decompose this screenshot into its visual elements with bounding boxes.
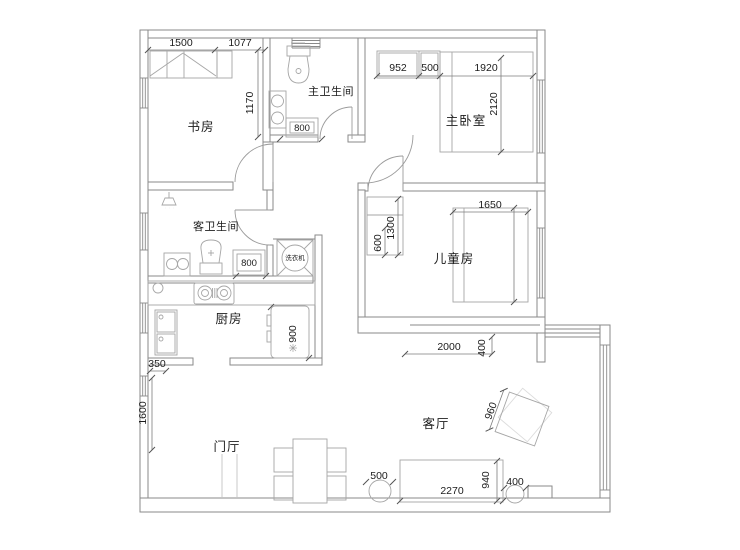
dim-label-400-stool: 400 [506, 476, 524, 488]
room-label-kitchen: 厨房 [215, 311, 242, 326]
wall-children-left [358, 190, 365, 322]
floor-plan-canvas: 书房 主卫生间 主卧室 客卫生间 儿童房 厨房 门厅 客厅 洗衣机 1500 1… [0, 0, 740, 550]
room-label-master-bedroom: 主卧室 [446, 113, 487, 128]
toilet-icon-guest [200, 240, 222, 274]
dim-label-1600: 1600 [137, 401, 149, 425]
dim-label-900-fridge: 900 [287, 325, 299, 343]
dim-label-2270: 2270 [440, 485, 464, 497]
dim-label-1500: 1500 [169, 37, 193, 49]
vanity-basin-icon-master [269, 91, 286, 128]
dim-label-500-closet: 500 [421, 62, 439, 74]
wall-outer-left [140, 30, 148, 498]
wall-outer-top [140, 30, 545, 38]
wall-bedroom-left [358, 38, 365, 135]
rug-ghost [498, 388, 552, 442]
wall-bath-bottom-right [348, 135, 365, 142]
floor-plan-page: 书房 主卫生间 主卧室 客卫生间 儿童房 厨房 门厅 客厅 洗衣机 1500 1… [0, 0, 740, 550]
washer-label: 洗衣机 [285, 253, 305, 262]
wall-outer-right-upper [537, 30, 545, 325]
door-master-bath [320, 107, 352, 139]
basin-icon-guest [164, 253, 190, 276]
sink-icon-kitchen [155, 310, 177, 355]
dim-label-400-wall: 400 [476, 339, 488, 357]
dim-label-500-stool: 500 [370, 470, 388, 482]
room-label-study: 书房 [187, 119, 214, 134]
wall-corridor-left [315, 235, 322, 365]
dim-label-1650: 1650 [478, 199, 502, 211]
wall-outer-right-lower [600, 325, 610, 498]
dim-label-1300: 1300 [385, 216, 397, 240]
dim-label-2000: 2000 [437, 341, 461, 353]
wall-bottom-notch [528, 486, 552, 498]
wall-guestbath-right-b [267, 245, 273, 277]
dim-label-1077: 1077 [228, 37, 252, 49]
wall-hall-stub [263, 142, 273, 190]
wall-bath-bottom-left [270, 135, 318, 142]
dim-label-800-master: 800 [294, 123, 310, 134]
kitchen-counter [148, 281, 315, 305]
windows [140, 38, 610, 490]
wall-children-top-right [403, 183, 545, 191]
rug-icon [486, 386, 550, 449]
toilet-icon-master [287, 43, 310, 83]
door-children-room [368, 156, 403, 191]
dim-label-940: 940 [480, 471, 492, 489]
dining-table-icon [274, 439, 346, 503]
dim-label-2120: 2120 [488, 92, 500, 116]
wardrobe-icon [150, 51, 232, 78]
foyer-threshold-lines [222, 454, 237, 498]
shower-icon-guest [162, 192, 176, 208]
room-label-kids-room: 儿童房 [434, 251, 475, 266]
dim-label-952: 952 [389, 62, 407, 74]
wall-outer-bottom [140, 498, 610, 512]
wall-guestbath-bottom [148, 276, 313, 283]
labels: 书房 主卫生间 主卧室 客卫生间 儿童房 厨房 门厅 客厅 洗衣机 1500 1… [137, 37, 524, 497]
room-label-foyer: 门厅 [213, 439, 240, 454]
wall-guestbath-right-a [267, 190, 273, 210]
dim-label-800-guest: 800 [241, 258, 257, 269]
dim-label-600: 600 [372, 234, 384, 252]
dim-label-350: 350 [148, 358, 166, 370]
stove-icon [194, 283, 234, 304]
room-label-guest-bath: 客卫生间 [193, 219, 239, 233]
wall-study-bottom [148, 182, 233, 190]
dim-label-1920: 1920 [474, 62, 498, 74]
room-label-living: 客厅 [422, 416, 449, 431]
room-label-master-bath: 主卫生间 [308, 84, 354, 98]
door-guest-bath [235, 210, 270, 245]
dim-label-1170: 1170 [244, 92, 256, 115]
window-living-step-top [545, 325, 600, 337]
dim-label-960: 960 [483, 401, 500, 422]
